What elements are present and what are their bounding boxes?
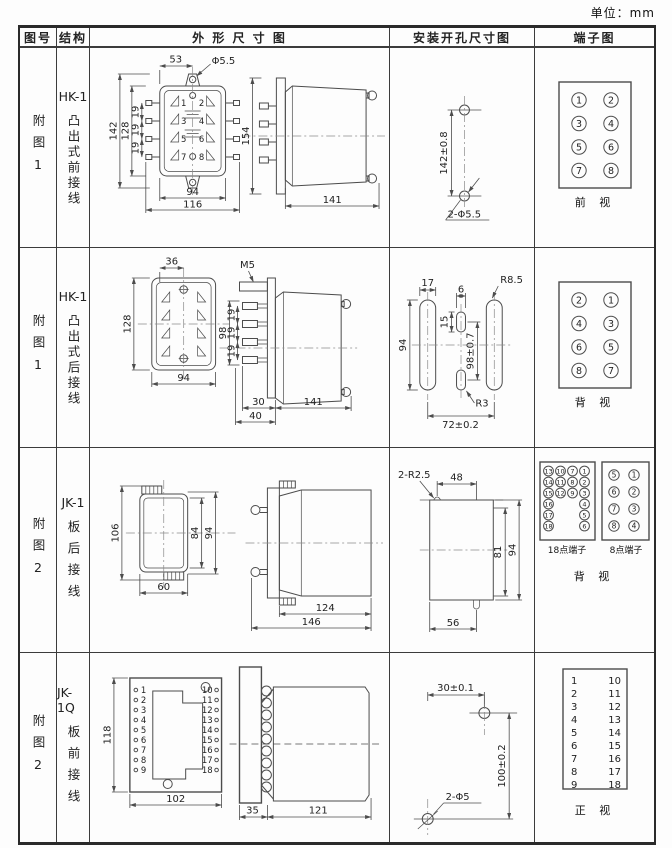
dimension-table: 图号 结构 外 形 尺 寸 图 安装开孔尺寸图 端子图 附图1 HK-1 凸出式… bbox=[18, 25, 656, 845]
figure-cell-row2: 附图1 bbox=[20, 248, 57, 448]
header-terminal: 端子图 bbox=[535, 28, 654, 48]
t18-10: 10 bbox=[556, 467, 564, 475]
figure-label: 附图1 bbox=[29, 114, 48, 181]
figure-cell-row3: 附图2 bbox=[20, 448, 57, 653]
t18-7: 7 bbox=[570, 467, 574, 475]
terminal-6: 6 bbox=[608, 143, 614, 154]
dim-19c: 19 bbox=[227, 345, 238, 358]
front-view bbox=[146, 67, 240, 195]
dim-19b: 19 bbox=[130, 124, 141, 137]
pin-6: 6 bbox=[141, 735, 146, 745]
pin-6: 6 bbox=[199, 134, 204, 144]
terminal-numbers: 1 2 3 4 5 6 7 8 9 10 11 12 13 14 15 16 1 bbox=[571, 676, 621, 817]
t18-6: 6 bbox=[582, 522, 586, 530]
t-5: 5 bbox=[571, 728, 577, 739]
t18-4: 4 bbox=[582, 500, 586, 508]
t-9: 9 bbox=[571, 780, 577, 791]
terminal-2: 2 bbox=[608, 96, 614, 107]
terminal-numbers-8: 5 1 6 2 7 3 8 4 bbox=[612, 471, 637, 531]
view-label: 背 视 bbox=[575, 395, 616, 409]
terminal-5: 5 bbox=[608, 343, 614, 354]
model-label: HK-1 bbox=[59, 89, 88, 104]
dim-holes: 2-Φ5.5 bbox=[448, 209, 481, 220]
t-3: 3 bbox=[571, 702, 577, 713]
t-14: 14 bbox=[608, 728, 621, 739]
figure-label: 附图1 bbox=[29, 314, 48, 381]
hk1-rear-wiring-install-drawing: 17 6 15 R8.5 94 98±0.7 R3 72±0.2 bbox=[390, 248, 534, 447]
dimension-labels: 2-R2.5 48 81 94 56 bbox=[398, 470, 519, 629]
dim-94: 94 bbox=[177, 373, 190, 384]
t18-11: 11 bbox=[556, 478, 564, 486]
t8-2: 2 bbox=[632, 488, 637, 497]
pin-1: 1 bbox=[141, 685, 146, 695]
t-16: 16 bbox=[608, 754, 621, 765]
pin-7: 7 bbox=[141, 745, 146, 755]
dim-142: 142 bbox=[108, 121, 119, 140]
header-structure: 结构 bbox=[57, 28, 90, 48]
structure-label: 板前接线 bbox=[64, 725, 83, 811]
terminal-cell-row3: 13 10 7 1 14 11 8 2 15 12 9 3 16 4 17 5 bbox=[535, 448, 654, 653]
terminal-8: 8 bbox=[608, 166, 614, 177]
hk1-rear-terminal-diagram: 2 1 4 3 6 5 8 7 背 视 bbox=[535, 248, 654, 447]
pin-16: 16 bbox=[202, 745, 213, 755]
dim-141: 141 bbox=[323, 195, 342, 206]
install-cell-row3: 2-R2.5 48 81 94 56 bbox=[390, 448, 535, 653]
t-2: 2 bbox=[571, 689, 577, 700]
pin-5: 5 bbox=[141, 725, 146, 735]
t-4: 4 bbox=[571, 715, 577, 726]
terminal-4: 4 bbox=[608, 119, 614, 130]
side-view bbox=[230, 667, 383, 803]
dim-100-tol: 100±0.2 bbox=[497, 744, 508, 787]
dim-121: 121 bbox=[309, 805, 328, 816]
t-18: 18 bbox=[608, 780, 621, 791]
dim-118: 118 bbox=[102, 725, 113, 744]
pin-2: 2 bbox=[199, 98, 204, 108]
dim-15: 15 bbox=[440, 316, 451, 329]
t-15: 15 bbox=[608, 741, 621, 752]
structure-label: 凸出式前接线 bbox=[64, 114, 83, 207]
structure-cell-row3: JK-1 板后接线 bbox=[57, 448, 90, 653]
dim-m5: M5 bbox=[240, 260, 255, 271]
dim-40: 40 bbox=[249, 411, 262, 422]
terminal-numbers-18: 13 10 7 1 14 11 8 2 15 12 9 3 16 4 17 5 bbox=[544, 467, 586, 530]
dim-19b: 19 bbox=[227, 327, 238, 340]
dim-30: 30 bbox=[252, 397, 265, 408]
t8-7: 7 bbox=[612, 505, 617, 514]
t18-1: 1 bbox=[582, 467, 586, 475]
t18-2: 2 bbox=[582, 478, 586, 486]
hk1-front-wiring-outline-drawing: 53 Φ5.5 142 128 19 19 19 94 116 154 141 … bbox=[90, 48, 389, 247]
t-17: 17 bbox=[608, 767, 621, 778]
t-6: 6 bbox=[571, 741, 577, 752]
pin-1: 1 bbox=[181, 98, 186, 108]
side-view bbox=[245, 481, 383, 605]
terminal-2: 2 bbox=[576, 296, 582, 307]
dim-94: 94 bbox=[398, 339, 409, 352]
view-label: 背 视 bbox=[574, 569, 615, 583]
pin-5: 5 bbox=[181, 134, 186, 144]
dim-102: 102 bbox=[166, 794, 185, 805]
terminal-8: 8 bbox=[576, 366, 582, 377]
terminal-cell-row4: 1 2 3 4 5 6 7 8 9 10 11 12 13 14 15 16 1 bbox=[535, 653, 654, 842]
terminal-4: 4 bbox=[576, 319, 582, 330]
pin-4: 4 bbox=[199, 116, 204, 126]
terminal-cell-row2: 2 1 4 3 6 5 8 7 背 视 bbox=[535, 248, 654, 448]
t8-4: 4 bbox=[632, 522, 637, 531]
pin-9: 9 bbox=[141, 765, 146, 775]
side-view bbox=[220, 278, 358, 404]
t8-6: 6 bbox=[612, 488, 617, 497]
t8-8: 8 bbox=[612, 522, 617, 531]
model-label: JK-1Q bbox=[57, 685, 89, 715]
view-label: 前 视 bbox=[575, 195, 616, 209]
t18-15: 15 bbox=[544, 489, 552, 497]
view-label: 正 视 bbox=[575, 803, 616, 817]
hk1-front-terminal-diagram: 1 2 3 4 5 6 7 8 前 视 bbox=[535, 48, 654, 247]
dimension-labels: 142±0.8 2-Φ5.5 bbox=[439, 131, 481, 220]
dim-124: 124 bbox=[316, 603, 335, 614]
pin-8: 8 bbox=[199, 152, 204, 162]
t-8: 8 bbox=[571, 767, 577, 778]
t-1: 1 bbox=[571, 676, 577, 687]
t-11: 11 bbox=[608, 689, 621, 700]
pin-12: 12 bbox=[202, 705, 213, 715]
header-install: 安装开孔尺寸图 bbox=[390, 28, 535, 48]
t18-5: 5 bbox=[582, 511, 586, 519]
dim-94: 94 bbox=[186, 187, 199, 198]
t18-12: 12 bbox=[556, 489, 564, 497]
dim-98-tol: 98±0.7 bbox=[465, 333, 476, 370]
terminal-5: 5 bbox=[576, 143, 582, 154]
terminal-6: 6 bbox=[576, 343, 582, 354]
pin-11: 11 bbox=[202, 695, 213, 705]
dim-94: 94 bbox=[204, 527, 215, 540]
terminal-3: 3 bbox=[576, 119, 582, 130]
t18-3: 3 bbox=[582, 489, 586, 497]
dim-116: 116 bbox=[183, 199, 202, 210]
side-view bbox=[241, 78, 385, 194]
t18-18: 18 bbox=[544, 522, 552, 530]
t18-14: 14 bbox=[544, 478, 552, 486]
dim-r25: 2-R2.5 bbox=[398, 470, 431, 481]
structure-cell-row1: HK-1 凸出式前接线 bbox=[57, 48, 90, 248]
figure-label: 附图2 bbox=[29, 714, 48, 781]
structure-label: 凸出式后接线 bbox=[64, 314, 83, 407]
dim-142-tol: 142±0.8 bbox=[439, 131, 450, 174]
dim-19a: 19 bbox=[227, 309, 238, 322]
pin-3: 3 bbox=[141, 705, 146, 715]
dim-30-tol: 30±0.1 bbox=[437, 683, 474, 694]
terminal-numbers: 1 2 3 4 5 6 7 8 前 视 bbox=[575, 96, 616, 210]
terminal-7: 7 bbox=[576, 166, 582, 177]
dimension-lines bbox=[452, 110, 480, 196]
dim-154: 154 bbox=[241, 126, 252, 145]
model-label: HK-1 bbox=[59, 289, 88, 304]
header-figure: 图号 bbox=[20, 28, 57, 48]
dim-94: 94 bbox=[508, 544, 519, 557]
terminal-7: 7 bbox=[608, 366, 614, 377]
unit-label: 单位：mm bbox=[591, 4, 655, 21]
pin-3: 3 bbox=[181, 116, 186, 126]
jk1-outline-drawing: 106 84 94 60 124 146 bbox=[90, 448, 389, 652]
figure-cell-row1: 附图1 bbox=[20, 48, 57, 248]
dimension-lines bbox=[112, 678, 371, 820]
jk1q-outline-drawing: 1 2 3 4 5 6 7 8 9 10 11 12 13 14 15 16 1 bbox=[90, 653, 389, 842]
outline-cell-row1: 53 Φ5.5 142 128 19 19 19 94 116 154 141 … bbox=[90, 48, 390, 248]
install-cell-row4: 30±0.1 100±0.2 2-Φ5 bbox=[390, 653, 535, 842]
t8-5: 5 bbox=[612, 471, 617, 480]
pin-17: 17 bbox=[202, 755, 213, 765]
structure-cell-row2: HK-1 凸出式后接线 bbox=[57, 248, 90, 448]
t18-8: 8 bbox=[570, 478, 574, 486]
dim-146: 146 bbox=[302, 617, 321, 628]
pin-18: 18 bbox=[202, 765, 213, 775]
dim-48: 48 bbox=[450, 472, 463, 483]
outline-cell-row4: 1 2 3 4 5 6 7 8 9 10 11 12 13 14 15 16 1 bbox=[90, 653, 390, 842]
dim-19c: 19 bbox=[130, 142, 141, 155]
outline-cell-row3: 106 84 94 60 124 146 bbox=[90, 448, 390, 653]
t-13: 13 bbox=[608, 715, 621, 726]
pin-2: 2 bbox=[141, 695, 146, 705]
figure-label: 附图2 bbox=[29, 517, 48, 584]
model-label: JK-1 bbox=[61, 495, 84, 510]
dim-17: 17 bbox=[421, 278, 434, 289]
terminal-box bbox=[559, 282, 631, 388]
dim-hole: Φ5.5 bbox=[212, 56, 236, 67]
hk1-rear-wiring-outline-drawing: 36 128 94 M5 98 19 19 19 30 40 141 bbox=[90, 248, 389, 447]
dim-128: 128 bbox=[122, 314, 133, 333]
figure-cell-row4: 附图2 bbox=[20, 653, 57, 842]
structure-cell-row4: JK-1Q 板前接线 bbox=[57, 653, 90, 842]
structure-label: 板后接线 bbox=[64, 520, 83, 606]
hole-pattern bbox=[412, 292, 512, 400]
jk1-install-drawing: 2-R2.5 48 81 94 56 bbox=[390, 448, 534, 652]
pin-15: 15 bbox=[202, 735, 213, 745]
outline-cell-row2: 36 128 94 M5 98 19 19 19 30 40 141 bbox=[90, 248, 390, 448]
pin-labels: 1 2 3 4 5 6 7 8 9 10 11 12 13 14 15 16 1 bbox=[141, 685, 213, 775]
jk1q-install-drawing: 30±0.1 100±0.2 2-Φ5 bbox=[390, 653, 534, 842]
t18-17: 17 bbox=[544, 511, 552, 519]
dim-81: 81 bbox=[493, 546, 504, 559]
t-12: 12 bbox=[608, 702, 621, 713]
header-outline: 外 形 尺 寸 图 bbox=[90, 28, 390, 48]
terminal-captions: 18点端子 8点端子 背 视 bbox=[548, 544, 643, 583]
jk1q-terminal-diagram: 1 2 3 4 5 6 7 8 9 10 11 12 13 14 15 16 1 bbox=[535, 653, 654, 842]
dim-106: 106 bbox=[110, 523, 121, 542]
datasheet-page: 单位：mm 图号 结构 外 形 尺 寸 图 安装开孔尺寸图 端子图 附图1 HK… bbox=[0, 0, 672, 848]
pin-14: 14 bbox=[202, 725, 213, 735]
dim-holes: 2-Φ5 bbox=[446, 792, 470, 803]
pin-4: 4 bbox=[141, 715, 146, 725]
pin-13: 13 bbox=[202, 715, 213, 725]
dim-60: 60 bbox=[157, 582, 170, 593]
t-7: 7 bbox=[571, 754, 577, 765]
t18-16: 16 bbox=[544, 500, 552, 508]
t8-1: 1 bbox=[632, 471, 637, 480]
dim-6: 6 bbox=[458, 284, 464, 295]
dim-r85: R8.5 bbox=[500, 275, 523, 286]
pin-10: 10 bbox=[202, 685, 213, 695]
install-cell-row1: 142±0.8 2-Φ5.5 bbox=[390, 48, 535, 248]
hk1-front-wiring-install-drawing: 142±0.8 2-Φ5.5 bbox=[390, 48, 534, 247]
terminal-1: 1 bbox=[576, 96, 582, 107]
t8-3: 3 bbox=[632, 505, 637, 514]
dimension-labels: 30±0.1 100±0.2 2-Φ5 bbox=[437, 683, 508, 803]
dim-36: 36 bbox=[165, 256, 178, 267]
label-18pt: 18点端子 bbox=[548, 544, 586, 556]
dim-56: 56 bbox=[447, 618, 460, 629]
terminal-1: 1 bbox=[608, 296, 614, 307]
jk1-terminal-diagram: 13 10 7 1 14 11 8 2 15 12 9 3 16 4 17 5 bbox=[535, 448, 654, 652]
install-cell-row2: 17 6 15 R8.5 94 98±0.7 R3 72±0.2 bbox=[390, 248, 535, 448]
dim-84: 84 bbox=[190, 527, 201, 540]
pin-7: 7 bbox=[181, 152, 186, 162]
dim-r3: R3 bbox=[475, 398, 488, 409]
dimension-labels: 17 6 15 R8.5 94 98±0.7 R3 72±0.2 bbox=[398, 275, 523, 431]
terminal-cell-row1: 1 2 3 4 5 6 7 8 前 视 bbox=[535, 48, 654, 248]
t18-9: 9 bbox=[570, 489, 574, 497]
t18-13: 13 bbox=[544, 467, 552, 475]
dim-72-tol: 72±0.2 bbox=[442, 420, 479, 431]
terminal-box bbox=[559, 82, 631, 188]
pin-8: 8 bbox=[141, 755, 146, 765]
t-10: 10 bbox=[608, 676, 621, 687]
terminal-3: 3 bbox=[608, 319, 614, 330]
label-8pt: 8点端子 bbox=[610, 544, 643, 556]
dim-35: 35 bbox=[246, 805, 259, 816]
dim-19a: 19 bbox=[130, 106, 141, 119]
front-view bbox=[126, 480, 236, 588]
hole-pattern bbox=[446, 96, 490, 220]
front-view bbox=[138, 268, 230, 379]
terminal-numbers: 2 1 4 3 6 5 8 7 背 视 bbox=[575, 296, 616, 410]
dim-141: 141 bbox=[304, 397, 323, 408]
dim-53: 53 bbox=[169, 54, 182, 65]
